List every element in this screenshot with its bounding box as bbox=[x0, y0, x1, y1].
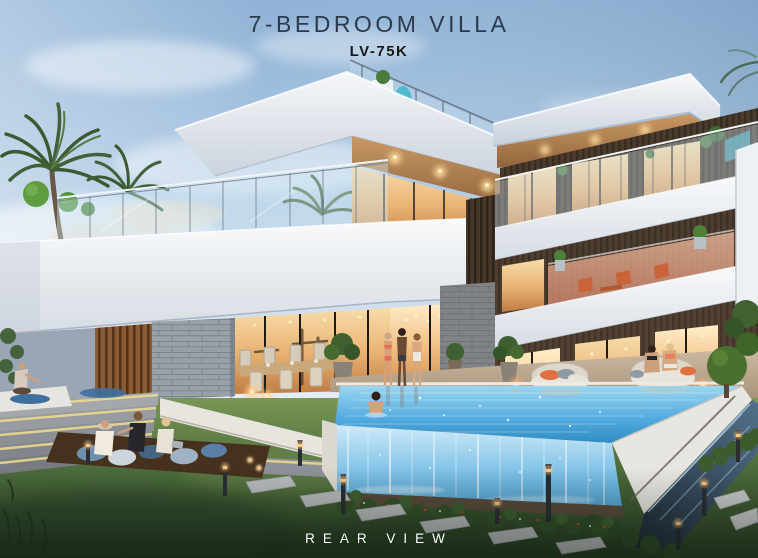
yoga-mat bbox=[10, 394, 50, 404]
cushion bbox=[540, 370, 560, 380]
daybed-reflection bbox=[641, 386, 689, 394]
downlight bbox=[540, 145, 550, 155]
bottom-vignette bbox=[0, 468, 758, 558]
downlight bbox=[590, 135, 600, 145]
far-coping bbox=[336, 383, 744, 384]
yoga-mat bbox=[80, 388, 126, 398]
cushion bbox=[568, 374, 582, 382]
candle-glow bbox=[247, 457, 253, 463]
villa-rendering bbox=[0, 0, 758, 558]
villa-showcase-image: 7-BEDROOM VILLA LV-75K REAR VIEW bbox=[0, 0, 758, 558]
daybed-reflection bbox=[538, 388, 582, 396]
roof-plant bbox=[376, 70, 390, 84]
cushion bbox=[630, 370, 644, 378]
stone-pillar bbox=[152, 318, 235, 400]
cushion bbox=[680, 367, 696, 376]
